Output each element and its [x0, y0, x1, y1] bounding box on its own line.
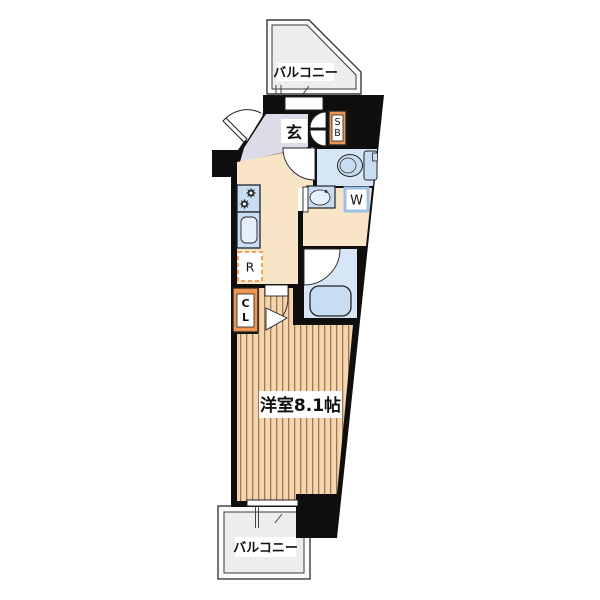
entrance-balcony-window	[285, 97, 323, 110]
toilet-flush-handle	[373, 153, 378, 161]
main-room-label: 洋室8.1帖	[260, 395, 341, 416]
washroom-door-opening	[298, 188, 303, 211]
shoebox-label-s: S	[334, 117, 340, 128]
washroom-sliding-door	[303, 187, 308, 212]
floorplan-canvas: バルコニー 玄 S B W R C L 洋室8.1帖 バルコニー	[0, 0, 600, 600]
stove-unit	[237, 185, 260, 212]
balcony-top-label: バルコニー	[273, 66, 338, 81]
bathtub	[310, 286, 351, 316]
toilet-bowl	[338, 155, 363, 177]
room-balcony-window	[247, 500, 298, 506]
washing-machine-label: W	[350, 194, 363, 209]
kitchen-sink	[241, 217, 257, 243]
entrance-label: 玄	[286, 123, 302, 142]
washbasin-faucet	[325, 190, 328, 193]
closet-label-l: L	[242, 311, 249, 324]
refrigerator-label: R	[246, 260, 255, 275]
closet-label-c: C	[241, 297, 249, 310]
shoebox-label-b: B	[334, 128, 341, 139]
floorplan-svg: バルコニー 玄 S B W R C L 洋室8.1帖 バルコニー	[0, 0, 600, 600]
balcony-bottom-label: バルコニー	[233, 541, 298, 556]
room-door-panel	[265, 285, 288, 296]
